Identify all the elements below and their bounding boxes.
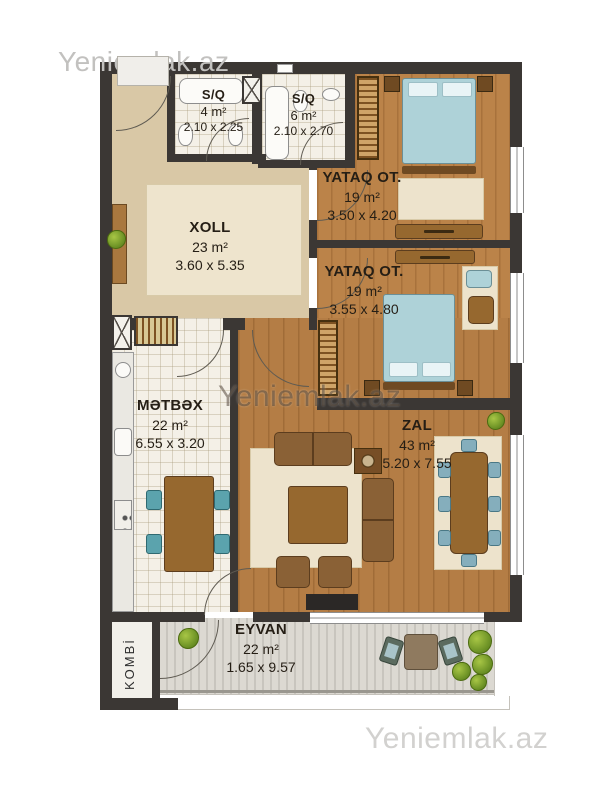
- dining-chair: [488, 496, 501, 512]
- sofa-long: [362, 478, 394, 562]
- room-name: YATAQ OT.: [312, 168, 412, 188]
- dining-chair: [438, 530, 451, 546]
- stove: [114, 500, 132, 530]
- room-area: 19 m²: [314, 282, 414, 300]
- nightstand-1a: [384, 76, 400, 92]
- room-name: S/Q: [175, 86, 252, 103]
- room-label-bedroom2: YATAQ OT. 19 m² 3.55 x 4.80: [314, 262, 414, 319]
- room-label-living: ZAL 43 m² 5.20 x 7.55: [362, 416, 472, 473]
- wall-bath2-right: [345, 62, 355, 160]
- floor-plan: Yeniemlak.az Yeniemlak.az Yeniemlak.az: [0, 0, 600, 800]
- room-label-bedroom1: YATAQ OT. 19 m² 3.50 x 4.20: [312, 168, 412, 225]
- wall-hall-bed1-b: [309, 220, 317, 258]
- window-bedroom1: [510, 147, 524, 213]
- pillow: [389, 362, 418, 377]
- bed-1-footboard: [402, 166, 476, 174]
- armchair: [276, 556, 310, 588]
- wall-hall-kitchen-b: [223, 318, 245, 330]
- pillow: [408, 82, 438, 97]
- dresser-handle: [424, 230, 454, 233]
- kitchen-chair: [146, 490, 162, 510]
- room-area: 19 m²: [312, 188, 412, 206]
- room-area: 6 m²: [262, 107, 345, 124]
- window-living: [510, 435, 524, 575]
- small-vent: [277, 64, 293, 73]
- wall-living-bottom-b: [484, 612, 522, 622]
- wall-right-2: [510, 213, 522, 273]
- balcony-rail: [152, 690, 494, 693]
- kitchen-counter: [112, 352, 134, 612]
- armchair: [318, 556, 352, 588]
- wall-boiler-bottom: [100, 698, 178, 710]
- room-area: 22 m²: [118, 416, 222, 434]
- tv: [306, 594, 358, 610]
- pillow: [442, 82, 472, 97]
- room-dims: 5.20 x 7.55: [362, 454, 472, 472]
- dining-chair: [488, 462, 501, 478]
- nightstand-2b: [457, 380, 473, 396]
- room-area: 43 m²: [362, 436, 472, 454]
- room-label-boiler: KOMBİ: [122, 636, 137, 690]
- watermark-bottom-right: Yeniemlak.az: [365, 722, 548, 756]
- room-name: YATAQ OT.: [314, 262, 414, 282]
- room-dims: 3.50 x 4.20: [312, 206, 412, 224]
- room-dims: 1.65 x 9.57: [196, 658, 326, 676]
- dining-chair: [438, 496, 451, 512]
- room-dims: 2.10 x 2.70: [262, 124, 345, 140]
- window-living-balcony: [310, 612, 484, 624]
- room-area: 23 m²: [140, 238, 280, 256]
- room-dims: 2.10 x 2.25: [175, 120, 252, 136]
- vanity-table: [468, 296, 494, 324]
- room-label-hall: XOLL 23 m² 3.60 x 5.35: [140, 218, 280, 275]
- room-dims: 6.55 x 3.20: [118, 434, 222, 452]
- window-bedroom2: [510, 273, 524, 363]
- kitchen-chair: [214, 534, 230, 554]
- kitchen-chair: [214, 490, 230, 510]
- balcony-table: [404, 634, 438, 670]
- room-name: EYVAN: [196, 620, 326, 640]
- room-label-kitchen: MƏTBƏX 22 m² 6.55 x 3.20: [118, 396, 222, 453]
- room-area: 4 m²: [175, 103, 252, 120]
- room-name: S/Q: [262, 90, 345, 107]
- room-label-sq4: S/Q 4 m² 2.10 x 2.25: [175, 86, 252, 136]
- dining-chair: [488, 530, 501, 546]
- pillow: [422, 362, 451, 377]
- vanity-seat: [466, 270, 492, 288]
- sofa: [274, 432, 352, 466]
- entry-vent-box: [117, 56, 169, 86]
- vent-shaft-kitchen: [112, 315, 132, 350]
- room-name: ZAL: [362, 416, 472, 436]
- room-label-sq6: S/Q 6 m² 2.10 x 2.70: [262, 90, 345, 140]
- nightstand-1b: [477, 76, 493, 92]
- dresser-handle: [420, 256, 450, 259]
- wall-boiler-right: [152, 612, 160, 698]
- washer-icon: [115, 362, 131, 378]
- wall-right-1: [510, 62, 522, 147]
- balcony-right-margin: [494, 618, 510, 696]
- wall-bed1-bed2: [317, 240, 510, 248]
- kitchen-chair: [146, 534, 162, 554]
- room-name: MƏTBƏX: [118, 396, 222, 416]
- room-label-balcony: EYVAN 22 m² 1.65 x 9.57: [196, 620, 326, 677]
- room-name: XOLL: [140, 218, 280, 238]
- wall-right-3: [510, 363, 522, 435]
- wardrobe-1: [357, 76, 379, 160]
- room-dims: 3.60 x 5.35: [140, 256, 280, 274]
- watermark-center: Yeniemlak.az: [218, 380, 401, 414]
- room-area: 22 m²: [196, 640, 326, 658]
- kitchen-table: [164, 476, 214, 572]
- hall-cabinet: [134, 316, 178, 346]
- room-dims: 3.55 x 4.80: [314, 300, 414, 318]
- coffee-table: [288, 486, 348, 544]
- balcony-outer-line: [152, 694, 510, 710]
- dining-chair: [461, 554, 477, 567]
